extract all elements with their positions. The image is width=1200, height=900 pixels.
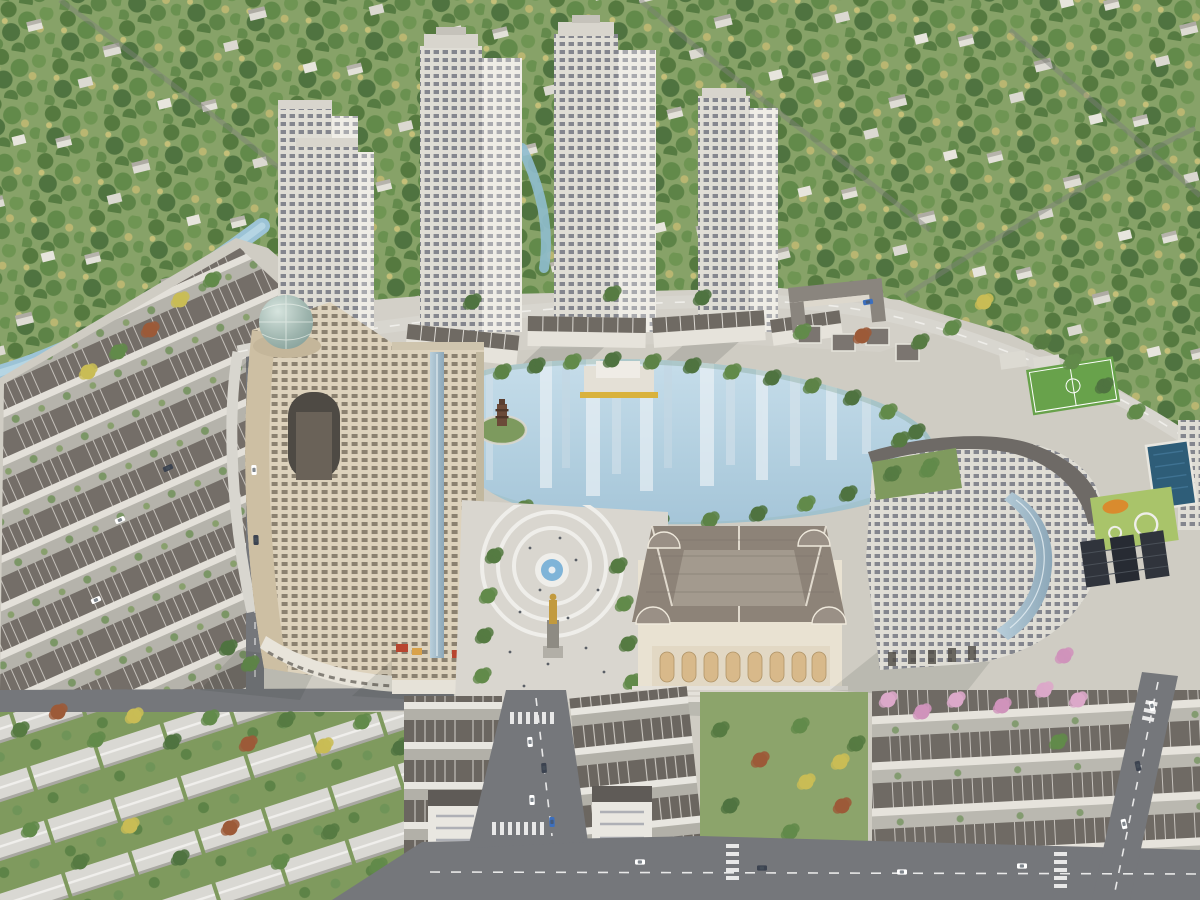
architectural-rendering — [0, 0, 1200, 900]
plaza-fountain — [535, 553, 569, 587]
central-plaza — [455, 496, 668, 702]
tower-central-a — [420, 27, 522, 332]
tower-central-b — [554, 15, 656, 332]
colonnade — [652, 646, 830, 686]
